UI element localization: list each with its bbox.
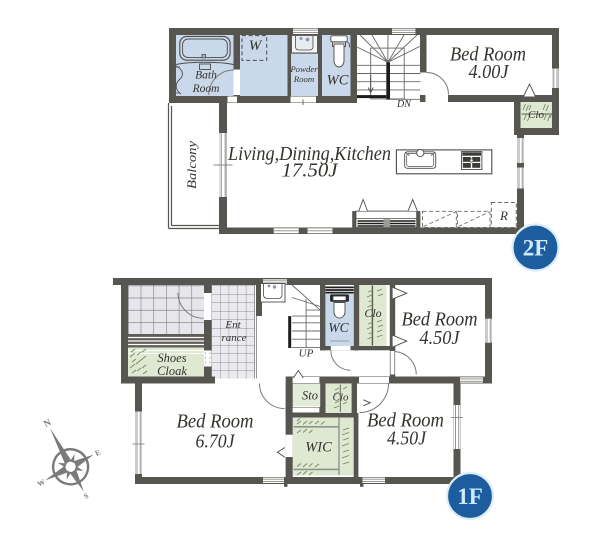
- svg-text:WIC: WIC: [305, 440, 332, 456]
- svg-text:Clo: Clo: [333, 392, 349, 404]
- svg-text:4.00J: 4.00J: [469, 61, 510, 83]
- svg-text:W: W: [249, 38, 263, 54]
- svg-text:Bed Room: Bed Room: [177, 411, 254, 433]
- svg-text:Ent: Ent: [224, 319, 241, 331]
- svg-text:Clo: Clo: [364, 306, 381, 320]
- svg-text:2F: 2F: [523, 236, 549, 261]
- svg-text:17.50J: 17.50J: [282, 160, 339, 182]
- svg-text:WC: WC: [328, 320, 349, 335]
- svg-text:Sto: Sto: [302, 389, 318, 403]
- svg-text:Shoes: Shoes: [157, 351, 186, 365]
- svg-text:R: R: [499, 208, 508, 223]
- svg-text:Clo: Clo: [528, 109, 544, 121]
- svg-text:Bath: Bath: [195, 70, 217, 82]
- svg-text:rance: rance: [221, 332, 246, 344]
- svg-text:1F: 1F: [457, 484, 483, 509]
- svg-text:DN: DN: [396, 99, 412, 110]
- svg-text:WC: WC: [327, 73, 349, 89]
- svg-text:Room: Room: [192, 83, 220, 95]
- svg-text:4.50J: 4.50J: [420, 327, 461, 349]
- svg-text:6.70J: 6.70J: [196, 431, 236, 453]
- svg-text:Cloak: Cloak: [157, 364, 187, 378]
- svg-text:Balcony: Balcony: [184, 141, 199, 189]
- svg-text:Room: Room: [293, 74, 315, 84]
- svg-text:Powder: Powder: [289, 64, 318, 74]
- svg-text:4.50J: 4.50J: [387, 428, 427, 450]
- svg-text:UP: UP: [299, 348, 314, 360]
